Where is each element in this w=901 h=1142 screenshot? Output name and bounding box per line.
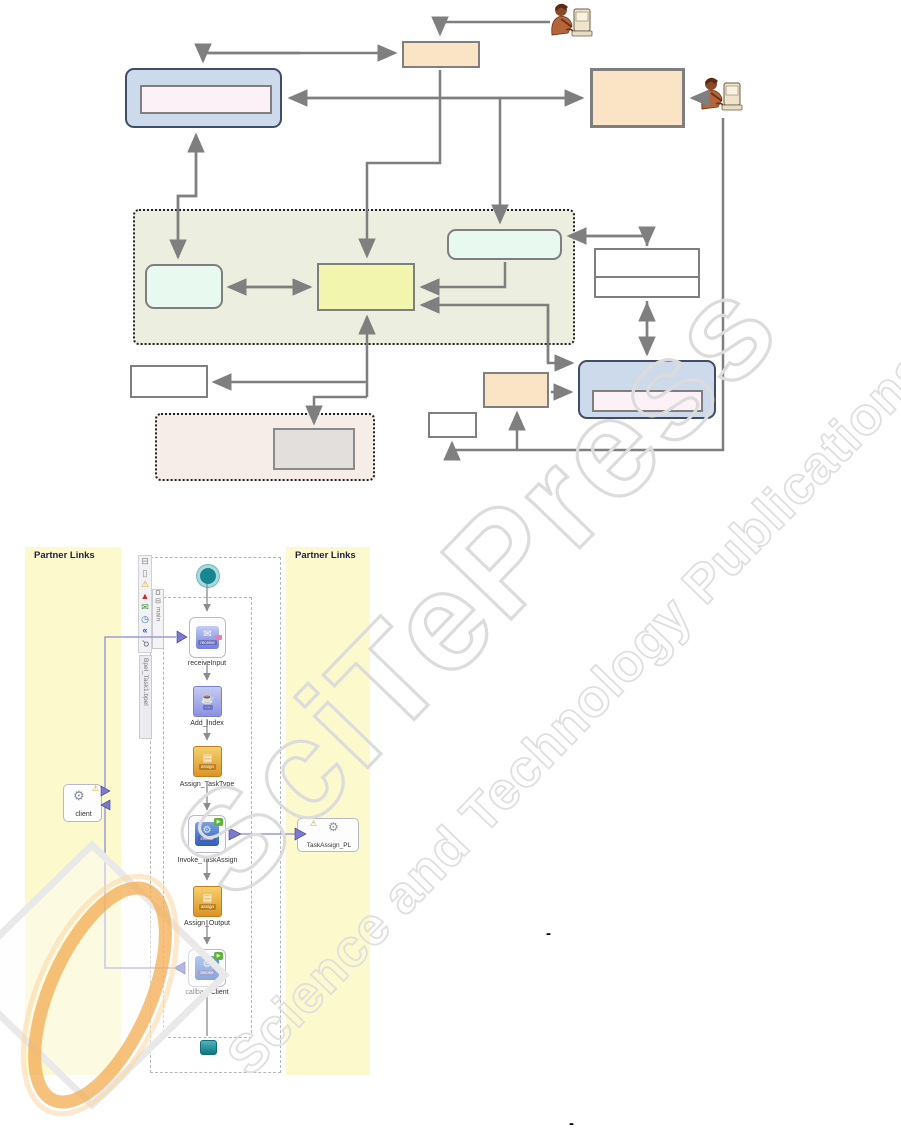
yellow-center-box bbox=[317, 263, 415, 311]
callback-icon-caption: invoke bbox=[198, 970, 215, 976]
warning-icon: ⚠ bbox=[139, 579, 151, 591]
text-dash-2: - bbox=[569, 1115, 574, 1132]
connector-topbox-to-blue bbox=[203, 53, 300, 61]
small-white-box bbox=[428, 412, 477, 438]
lock-icon: Ω bbox=[153, 590, 163, 597]
activity-assign-tasktype: ▤ assign bbox=[193, 746, 222, 777]
assign-output-label: Assign_Output bbox=[162, 920, 252, 927]
bpel-toolbar: ⊟ ▯ ⚠ ▲ ✉ ◷ « ⚲ bbox=[138, 555, 152, 653]
lower-right-blue-inner-box bbox=[592, 390, 703, 412]
two-compartment-box bbox=[594, 248, 700, 298]
activity-callbackclient: ⚙ invoke ▶ bbox=[188, 949, 226, 987]
process-file-tab: Bpel_Task1.bpel bbox=[139, 655, 152, 739]
partnerlink-taskassign: ⚠ ⚙ TaskAssign_PL bbox=[297, 818, 359, 852]
document-icon: ▯ bbox=[139, 568, 151, 580]
connector-registry-to-greenright bbox=[569, 236, 647, 246]
receive-activity-icon: ✉ receive bbox=[196, 626, 219, 649]
gear-icon: ⚙ bbox=[328, 820, 339, 834]
add-index-label: Add_Index bbox=[167, 720, 247, 727]
invoke-icon-caption: invoke bbox=[198, 836, 215, 842]
assign-tasktype-label: Assign_TaskType bbox=[162, 781, 252, 788]
lower-right-blue-box bbox=[578, 360, 716, 419]
activity-receiveinput: ✉ receive bbox=[189, 617, 226, 658]
error-icon: ▲ bbox=[139, 591, 151, 603]
paper-page: Partner Links Partner Links ⊟ ▯ ⚠ ▲ ✉ ◷ … bbox=[0, 0, 901, 1142]
invoke-taskassign-label: Invoke_TaskAssign bbox=[160, 857, 255, 864]
end-activity-marker bbox=[200, 1040, 217, 1055]
lower-orange-box bbox=[483, 372, 549, 408]
top-center-orange-box bbox=[402, 41, 480, 68]
process-file-tab-label: Bpel_Task1.bpel bbox=[142, 658, 149, 706]
connector-greenright-to-registry bbox=[569, 236, 647, 244]
activity-assign-output: ▤ assign bbox=[193, 886, 222, 917]
pages-icon: ▤ bbox=[203, 893, 212, 904]
monitor-icon: ⊟ bbox=[153, 597, 163, 605]
taskassign-pl-label: TaskAssign_PL bbox=[298, 842, 360, 849]
activity-invoke-taskassign: ⚙ invoke ▶ bbox=[188, 815, 226, 853]
assign-tasktype-icon-caption: assign bbox=[199, 764, 216, 770]
connector-layer bbox=[0, 0, 901, 1142]
invoke-activity-icon: ⚙ invoke ▶ bbox=[195, 822, 219, 846]
connector-user-to-topbox bbox=[440, 22, 550, 34]
invoke-arrow-badge-icon: ▶ bbox=[214, 952, 223, 960]
partner-links-right-title: Partner Links bbox=[295, 550, 356, 561]
gear-icon: ⚙ bbox=[203, 960, 212, 970]
green-box-right bbox=[447, 229, 562, 260]
pages-icon: ▤ bbox=[203, 753, 212, 764]
activity-add-index: ☕ ···· bbox=[193, 686, 222, 717]
text-dash-1: - bbox=[546, 925, 551, 942]
gray-inner-box bbox=[273, 428, 355, 470]
green-box-left bbox=[145, 264, 223, 309]
compartment-divider bbox=[596, 276, 698, 278]
scope-tab-label: main bbox=[155, 607, 162, 621]
top-left-blue-box bbox=[125, 68, 282, 128]
partnerlink-client: ⚙ ⚠ client bbox=[63, 784, 102, 822]
user-icon-right bbox=[702, 78, 742, 110]
cup-icon: ☕ bbox=[201, 693, 215, 705]
invoke-activity-icon: ⚙ invoke ▶ bbox=[195, 956, 219, 980]
scope-tab: Ω ⊟ main bbox=[152, 589, 164, 649]
watermark-layer: SciTePress Science and Technology Public… bbox=[0, 0, 901, 1142]
partner-links-panel-right: Partner Links bbox=[286, 547, 370, 1075]
clock-icon: ◷ bbox=[139, 614, 151, 626]
collapse-icon: ⊟ bbox=[139, 556, 151, 568]
invoke-arrow-badge-icon: ▶ bbox=[214, 818, 223, 826]
warning-icon: ⚠ bbox=[310, 819, 317, 828]
warning-icon: ⚠ bbox=[92, 784, 99, 793]
gear-icon: ⚙ bbox=[203, 826, 212, 836]
assign-output-icon-caption: assign bbox=[199, 904, 216, 910]
envelope-icon: ✉ bbox=[203, 630, 211, 640]
mail-icon: ✉ bbox=[139, 602, 151, 614]
user-icon-top bbox=[552, 4, 592, 36]
gear-icon: ⚙ bbox=[73, 788, 85, 804]
receiveinput-label: receiveInput bbox=[167, 660, 247, 667]
start-activity-marker bbox=[197, 565, 219, 587]
receive-icon-caption: receive bbox=[198, 640, 217, 646]
lower-left-white-box bbox=[130, 365, 208, 398]
right-orange-box bbox=[590, 68, 685, 128]
top-left-blue-inner-box bbox=[140, 85, 272, 114]
callbackclient-label: callbackClient bbox=[162, 989, 252, 996]
client-label: client bbox=[64, 811, 103, 818]
variable-tag-icon bbox=[215, 635, 222, 640]
add-index-icon-caption: ···· bbox=[203, 705, 213, 711]
partner-links-left-title: Partner Links bbox=[34, 550, 95, 561]
